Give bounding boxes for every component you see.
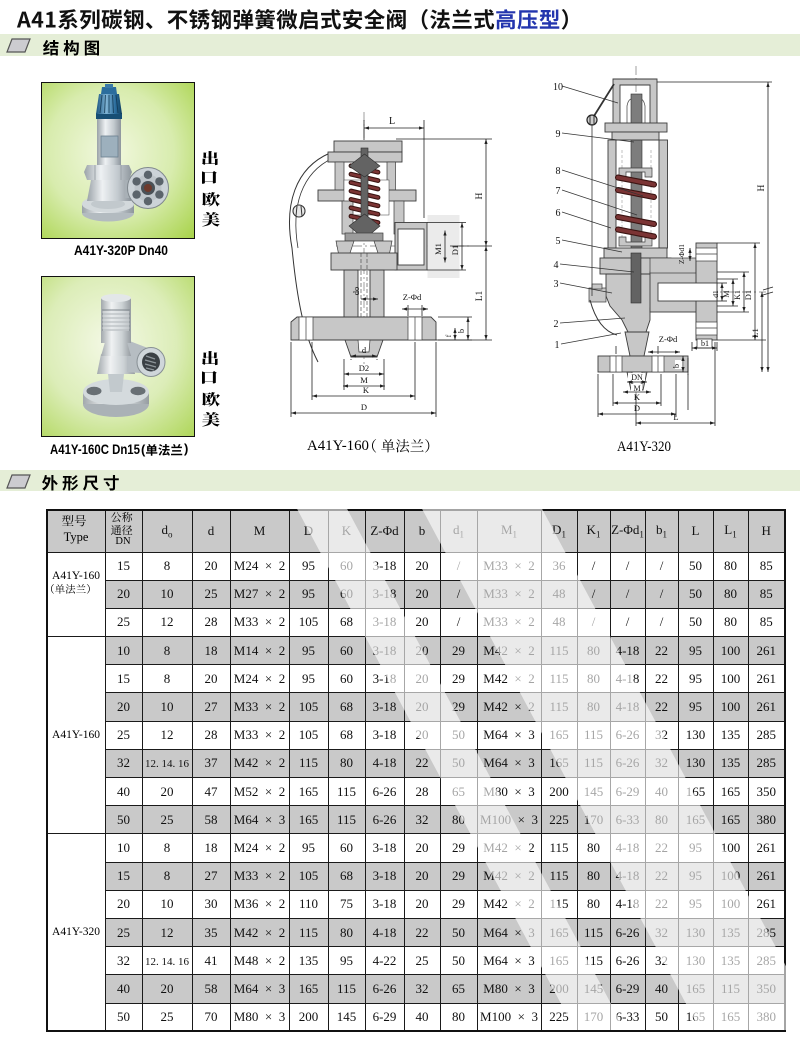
svg-text:7: 7 — [556, 186, 561, 197]
svg-text:3: 3 — [554, 279, 559, 290]
svg-text:D1: D1 — [450, 245, 460, 255]
svg-text:H: H — [757, 184, 767, 191]
svg-text:1: 1 — [555, 340, 560, 351]
svg-text:10: 10 — [553, 82, 563, 93]
svg-text:f: f — [444, 334, 453, 337]
svg-text:A41Y-160C Dn15: A41Y-160C Dn15 — [50, 441, 140, 457]
svg-text:K: K — [634, 392, 641, 402]
svg-text:D: D — [361, 402, 367, 412]
svg-text:A41Y-320P Dn40: A41Y-320P Dn40 — [74, 242, 168, 258]
svg-text:2: 2 — [554, 319, 559, 330]
svg-text:Z-Φd1: Z-Φd1 — [677, 244, 686, 264]
svg-text:6: 6 — [556, 208, 561, 219]
svg-text:b1: b1 — [701, 339, 709, 348]
svg-text:do: do — [351, 287, 361, 296]
svg-text:K: K — [363, 385, 370, 395]
svg-text:4: 4 — [554, 260, 559, 271]
svg-text:D1: D1 — [743, 290, 753, 300]
svg-text:A41Y-320: A41Y-320 — [617, 439, 671, 455]
svg-text:d1: d1 — [711, 290, 720, 298]
svg-text:5: 5 — [556, 236, 561, 247]
svg-text:M: M — [360, 375, 368, 385]
svg-text:DN: DN — [631, 373, 643, 382]
svg-text:Z-Φd: Z-Φd — [659, 334, 678, 344]
svg-text:L1: L1 — [750, 328, 760, 337]
svg-text:H: H — [475, 192, 485, 199]
svg-text:b: b — [457, 329, 466, 333]
svg-text:M1: M1 — [433, 243, 443, 255]
svg-text:L: L — [389, 116, 395, 127]
svg-text:L1: L1 — [475, 290, 485, 301]
svg-text:K1: K1 — [733, 290, 742, 300]
svg-text:D: D — [634, 403, 640, 413]
svg-text:b: b — [672, 364, 681, 368]
svg-text:Z-Φd: Z-Φd — [403, 292, 422, 302]
svg-text:A41Y-160: A41Y-160 — [307, 438, 369, 454]
svg-text:D2: D2 — [359, 363, 369, 373]
svg-text:8: 8 — [556, 166, 561, 177]
svg-text:9: 9 — [556, 129, 561, 140]
